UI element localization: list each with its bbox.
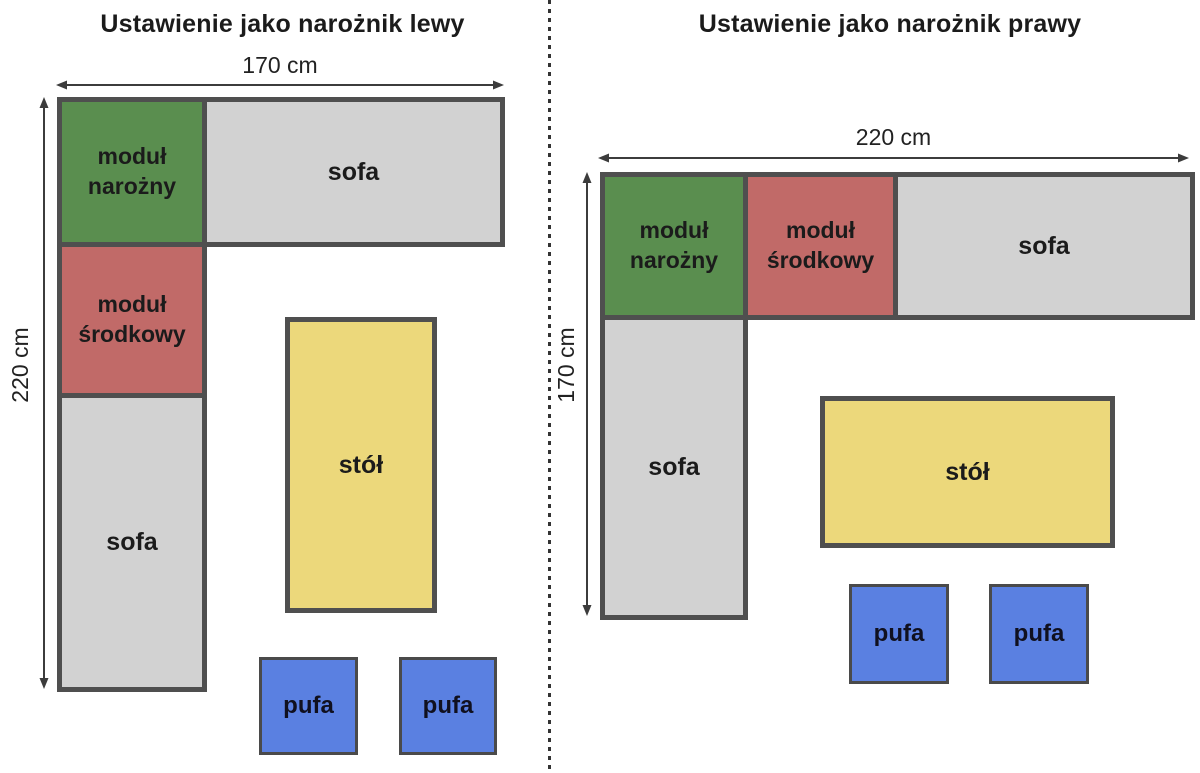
right-height-dimension-label: 170 cm bbox=[553, 317, 579, 413]
left-middle-module-box: moduł środkowy bbox=[57, 242, 207, 398]
left-corner-module-box: moduł narożny bbox=[57, 97, 207, 247]
right-height-arrow bbox=[580, 171, 594, 617]
left-height-arrow bbox=[37, 96, 51, 690]
left-middle-module-label: moduł środkowy bbox=[78, 290, 185, 350]
right-corner-module-box: moduł narożny bbox=[600, 172, 748, 320]
left-height-dimension-label: 220 cm bbox=[7, 317, 33, 413]
right-sofa-top-label: sofa bbox=[1018, 230, 1069, 263]
right-width-arrow bbox=[597, 151, 1190, 165]
furniture-layout-diagram: Ustawienie jako narożnik lewy 170 cm 220… bbox=[0, 0, 1200, 773]
left-sofa-side-box: sofa bbox=[57, 393, 207, 692]
right-pufa-2-box: pufa bbox=[989, 584, 1089, 684]
right-pufa-1-label: pufa bbox=[874, 618, 925, 649]
right-width-dimension-label: 220 cm bbox=[597, 124, 1190, 151]
right-sofa-side-box: sofa bbox=[600, 315, 748, 620]
left-pufa-2-box: pufa bbox=[399, 657, 497, 755]
left-corner-module-label: moduł narożny bbox=[88, 142, 176, 202]
left-pufa-1-box: pufa bbox=[259, 657, 358, 755]
right-middle-module-label: moduł środkowy bbox=[767, 216, 874, 276]
right-corner-module-label: moduł narożny bbox=[630, 216, 718, 276]
left-sofa-top-box: sofa bbox=[202, 97, 505, 247]
right-pufa-2-label: pufa bbox=[1014, 618, 1065, 649]
right-middle-module-box: moduł środkowy bbox=[743, 172, 898, 320]
left-width-dimension-label: 170 cm bbox=[55, 52, 505, 79]
dashed-divider-line bbox=[548, 0, 551, 773]
right-sofa-side-label: sofa bbox=[648, 451, 699, 484]
left-width-arrow bbox=[55, 78, 505, 92]
right-pufa-1-box: pufa bbox=[849, 584, 949, 684]
right-table-box: stół bbox=[820, 396, 1115, 548]
right-table-label: stół bbox=[945, 456, 989, 489]
left-sofa-top-label: sofa bbox=[328, 156, 379, 189]
right-sofa-top-box: sofa bbox=[893, 172, 1195, 320]
left-pufa-1-label: pufa bbox=[283, 690, 334, 721]
left-table-box: stół bbox=[285, 317, 437, 613]
left-diagram-title: Ustawienie jako narożnik lewy bbox=[5, 10, 560, 39]
left-sofa-side-label: sofa bbox=[106, 526, 157, 559]
left-pufa-2-label: pufa bbox=[423, 690, 474, 721]
right-diagram-title: Ustawienie jako narożnik prawy bbox=[595, 10, 1185, 39]
left-table-label: stół bbox=[339, 449, 383, 482]
